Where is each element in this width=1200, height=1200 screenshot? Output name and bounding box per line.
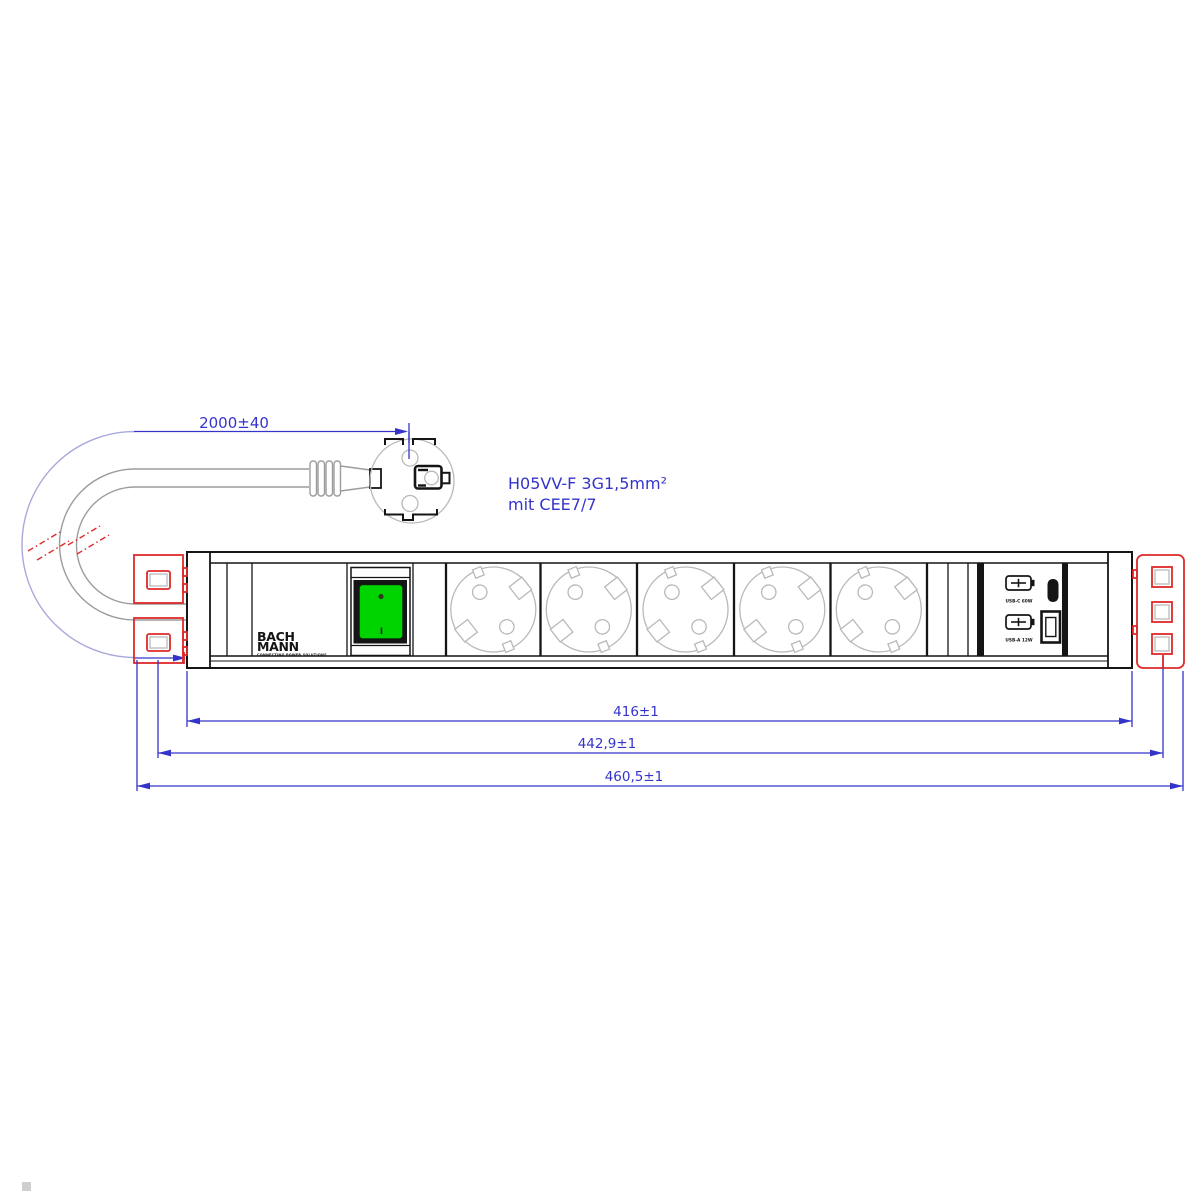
- cable-break-marks: [28, 526, 109, 560]
- dim-overall-value: 460,5±1: [605, 769, 664, 785]
- bracket-left: [134, 555, 187, 663]
- technical-drawing-page: 2000±40 H05VV-F 3G1,5mm² mit CEE7/7: [0, 0, 1200, 1200]
- dim-mounting-value: 442,9±1: [578, 736, 637, 752]
- socket-5: [827, 560, 930, 658]
- usb-c-port: [1048, 579, 1059, 602]
- cable-spec-text: H05VV-F 3G1,5mm² mit CEE7/7: [508, 474, 667, 514]
- cable-spec-line1: H05VV-F 3G1,5mm²: [508, 474, 667, 493]
- usb-a-label: USB-A 12W: [1005, 638, 1032, 644]
- power-switch: I: [351, 568, 410, 656]
- dimension-overall-width: 460,5±1: [137, 769, 1183, 789]
- power-strip-technical-drawing: 2000±40 H05VV-F 3G1,5mm² mit CEE7/7: [0, 0, 1200, 1200]
- usb-c-charge-icon: [1006, 576, 1035, 590]
- dimension-body-width: 416±1: [187, 704, 1132, 724]
- switch-mark-on: I: [380, 627, 383, 637]
- dimension-mounting-width: 442,9±1: [158, 736, 1163, 756]
- dim-body-value: 416±1: [613, 704, 659, 720]
- brand-line2: MANN: [257, 639, 299, 654]
- socket-4: [731, 560, 834, 658]
- watermark-artifact: [22, 1182, 31, 1191]
- switch-mark-off-dot: [378, 594, 383, 599]
- cable-loop: [22, 432, 309, 658]
- socket-2: [537, 560, 640, 658]
- usb-c-label: USB-C 60W: [1005, 599, 1032, 605]
- strip-body: [187, 552, 1132, 668]
- socket-3: [634, 560, 737, 658]
- usb-a-port: [1042, 612, 1061, 643]
- bottom-dimensions: 416±1 442,9±1 460,5±1: [137, 655, 1183, 791]
- usb-charger-panel: USB-C 60W USB-A 12W: [1005, 576, 1060, 644]
- socket-1: [442, 560, 545, 658]
- usb-a-charge-icon: [1006, 615, 1035, 629]
- bracket-right: [1133, 555, 1184, 668]
- power-plug-cee77: [310, 439, 454, 523]
- socket-row: [442, 560, 930, 658]
- brand-logo: BACH MANN CONNECTING POWER SOLUTIONS: [257, 629, 327, 657]
- brand-tagline: CONNECTING POWER SOLUTIONS: [257, 653, 327, 657]
- cable-spec-line2: mit CEE7/7: [508, 495, 597, 514]
- cable-length-value: 2000±40: [199, 414, 269, 432]
